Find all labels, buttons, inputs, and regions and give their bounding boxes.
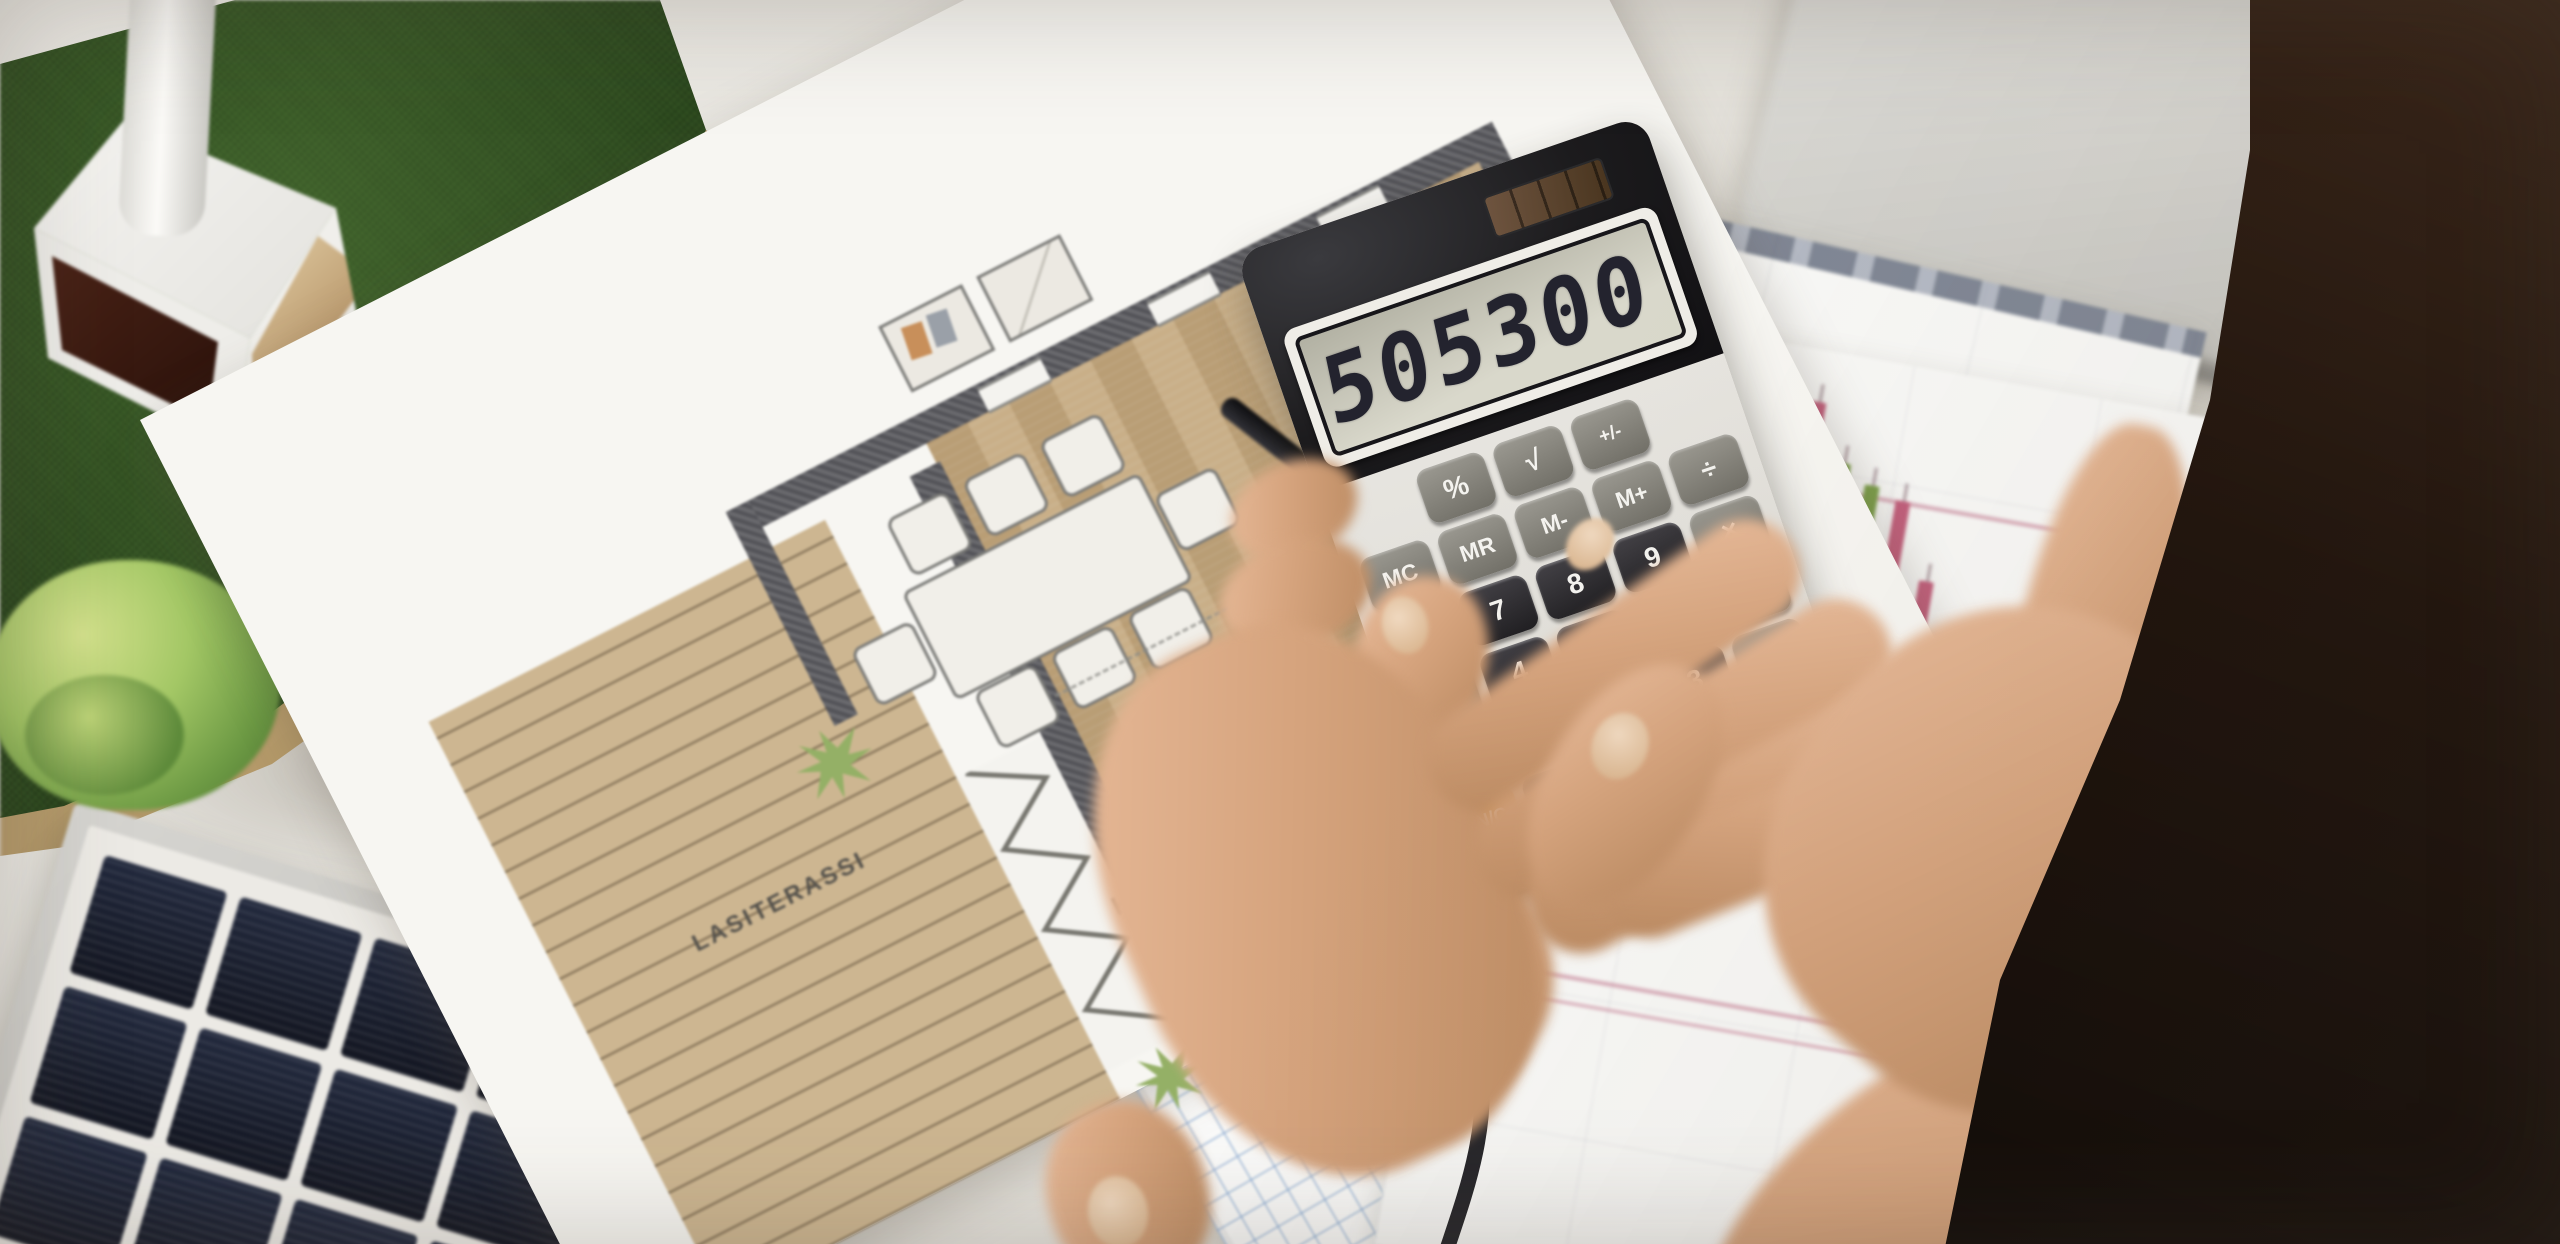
- calc-key-MR[interactable]: MR: [1434, 511, 1520, 587]
- calc-key-÷[interactable]: ÷: [1666, 431, 1752, 507]
- calc-key-%[interactable]: %: [1413, 450, 1499, 526]
- calc-key-+/-[interactable]: +/-: [1568, 396, 1654, 472]
- desk-scene: LASITERASSI KEITTIÖ 18.0 OH+R 505300 %√+…: [0, 0, 2560, 1244]
- calc-key-blank: [1645, 370, 1731, 446]
- calc-key-√[interactable]: √: [1490, 423, 1576, 499]
